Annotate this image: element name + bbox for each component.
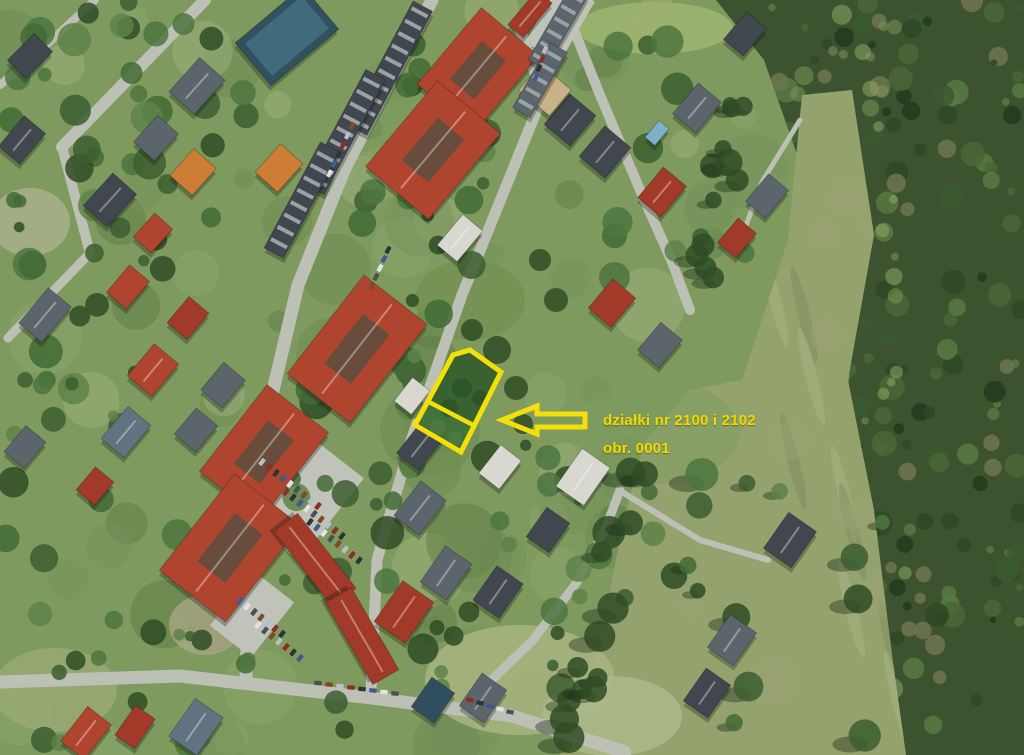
- annotation-arrow: [502, 406, 585, 434]
- annotation-overlay: [0, 0, 1024, 755]
- highlighted-parcels: [415, 350, 501, 452]
- parcel-tree-shade: [452, 378, 472, 398]
- aerial-map-image: działki nr 2100 i 2102 obr. 0001: [0, 0, 1024, 755]
- parcel-label-line1: działki nr 2100 i 2102: [603, 412, 756, 429]
- parcel-label-line2: obr. 0001: [603, 440, 670, 457]
